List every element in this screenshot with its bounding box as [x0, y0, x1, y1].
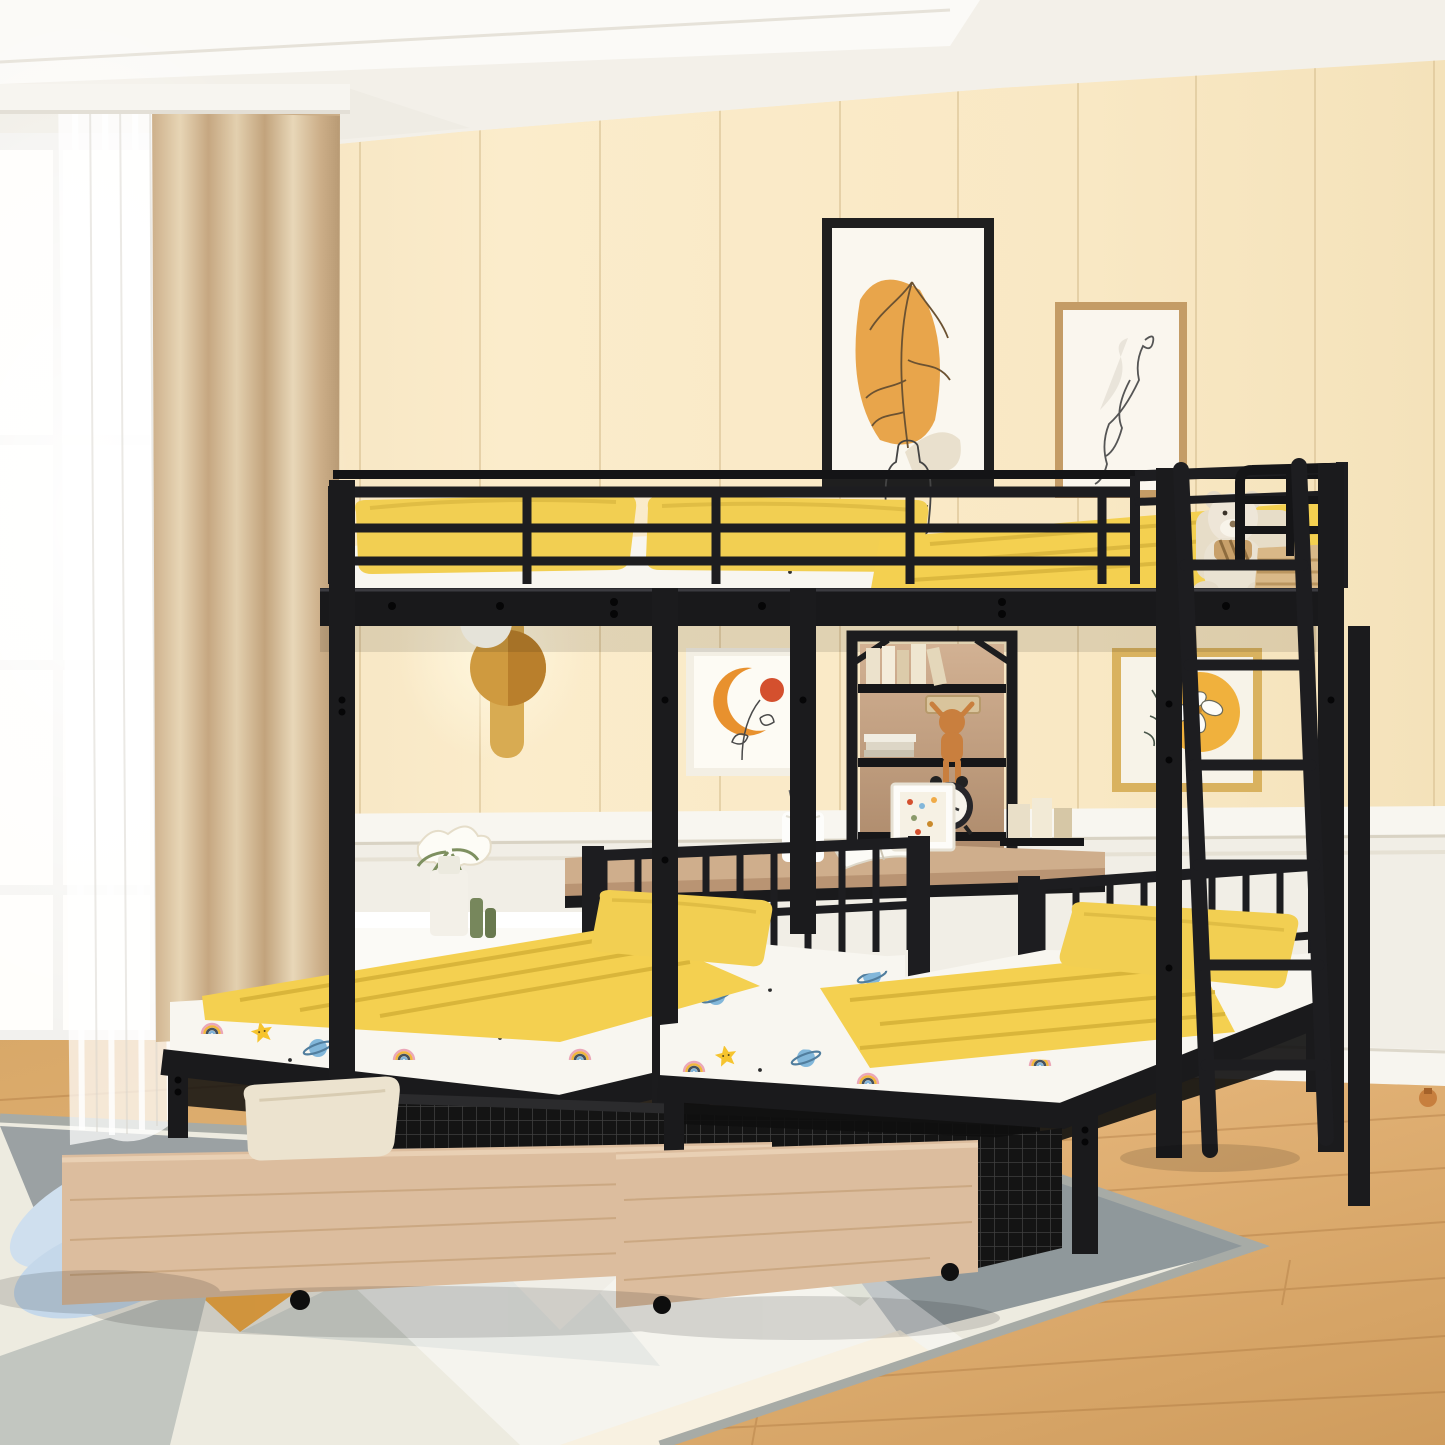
bedroom-photo	[0, 0, 1445, 1445]
teddy-bow	[1214, 540, 1252, 560]
shelf-books-mid	[864, 734, 916, 757]
beige-curtain	[152, 92, 340, 1043]
art-moon-poster	[686, 648, 808, 776]
cornice	[0, 84, 350, 112]
shelf-books-top	[866, 644, 947, 686]
caster-wheel	[941, 1263, 959, 1281]
post-center-right	[790, 588, 816, 934]
post-left-end	[329, 480, 355, 1152]
scene-canvas	[0, 0, 1445, 1445]
post-rear-right	[1348, 626, 1370, 1206]
